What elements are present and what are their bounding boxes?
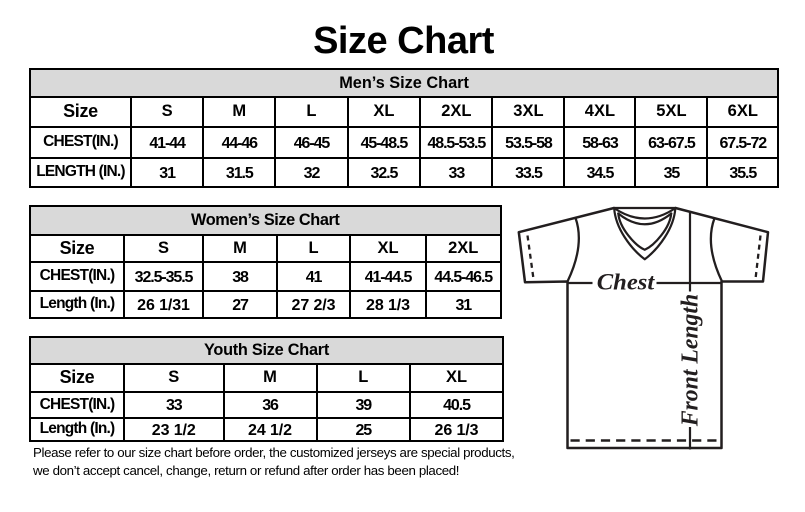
svg-text:Front Length: Front Length <box>678 294 704 427</box>
svg-text:Chest: Chest <box>597 270 656 296</box>
